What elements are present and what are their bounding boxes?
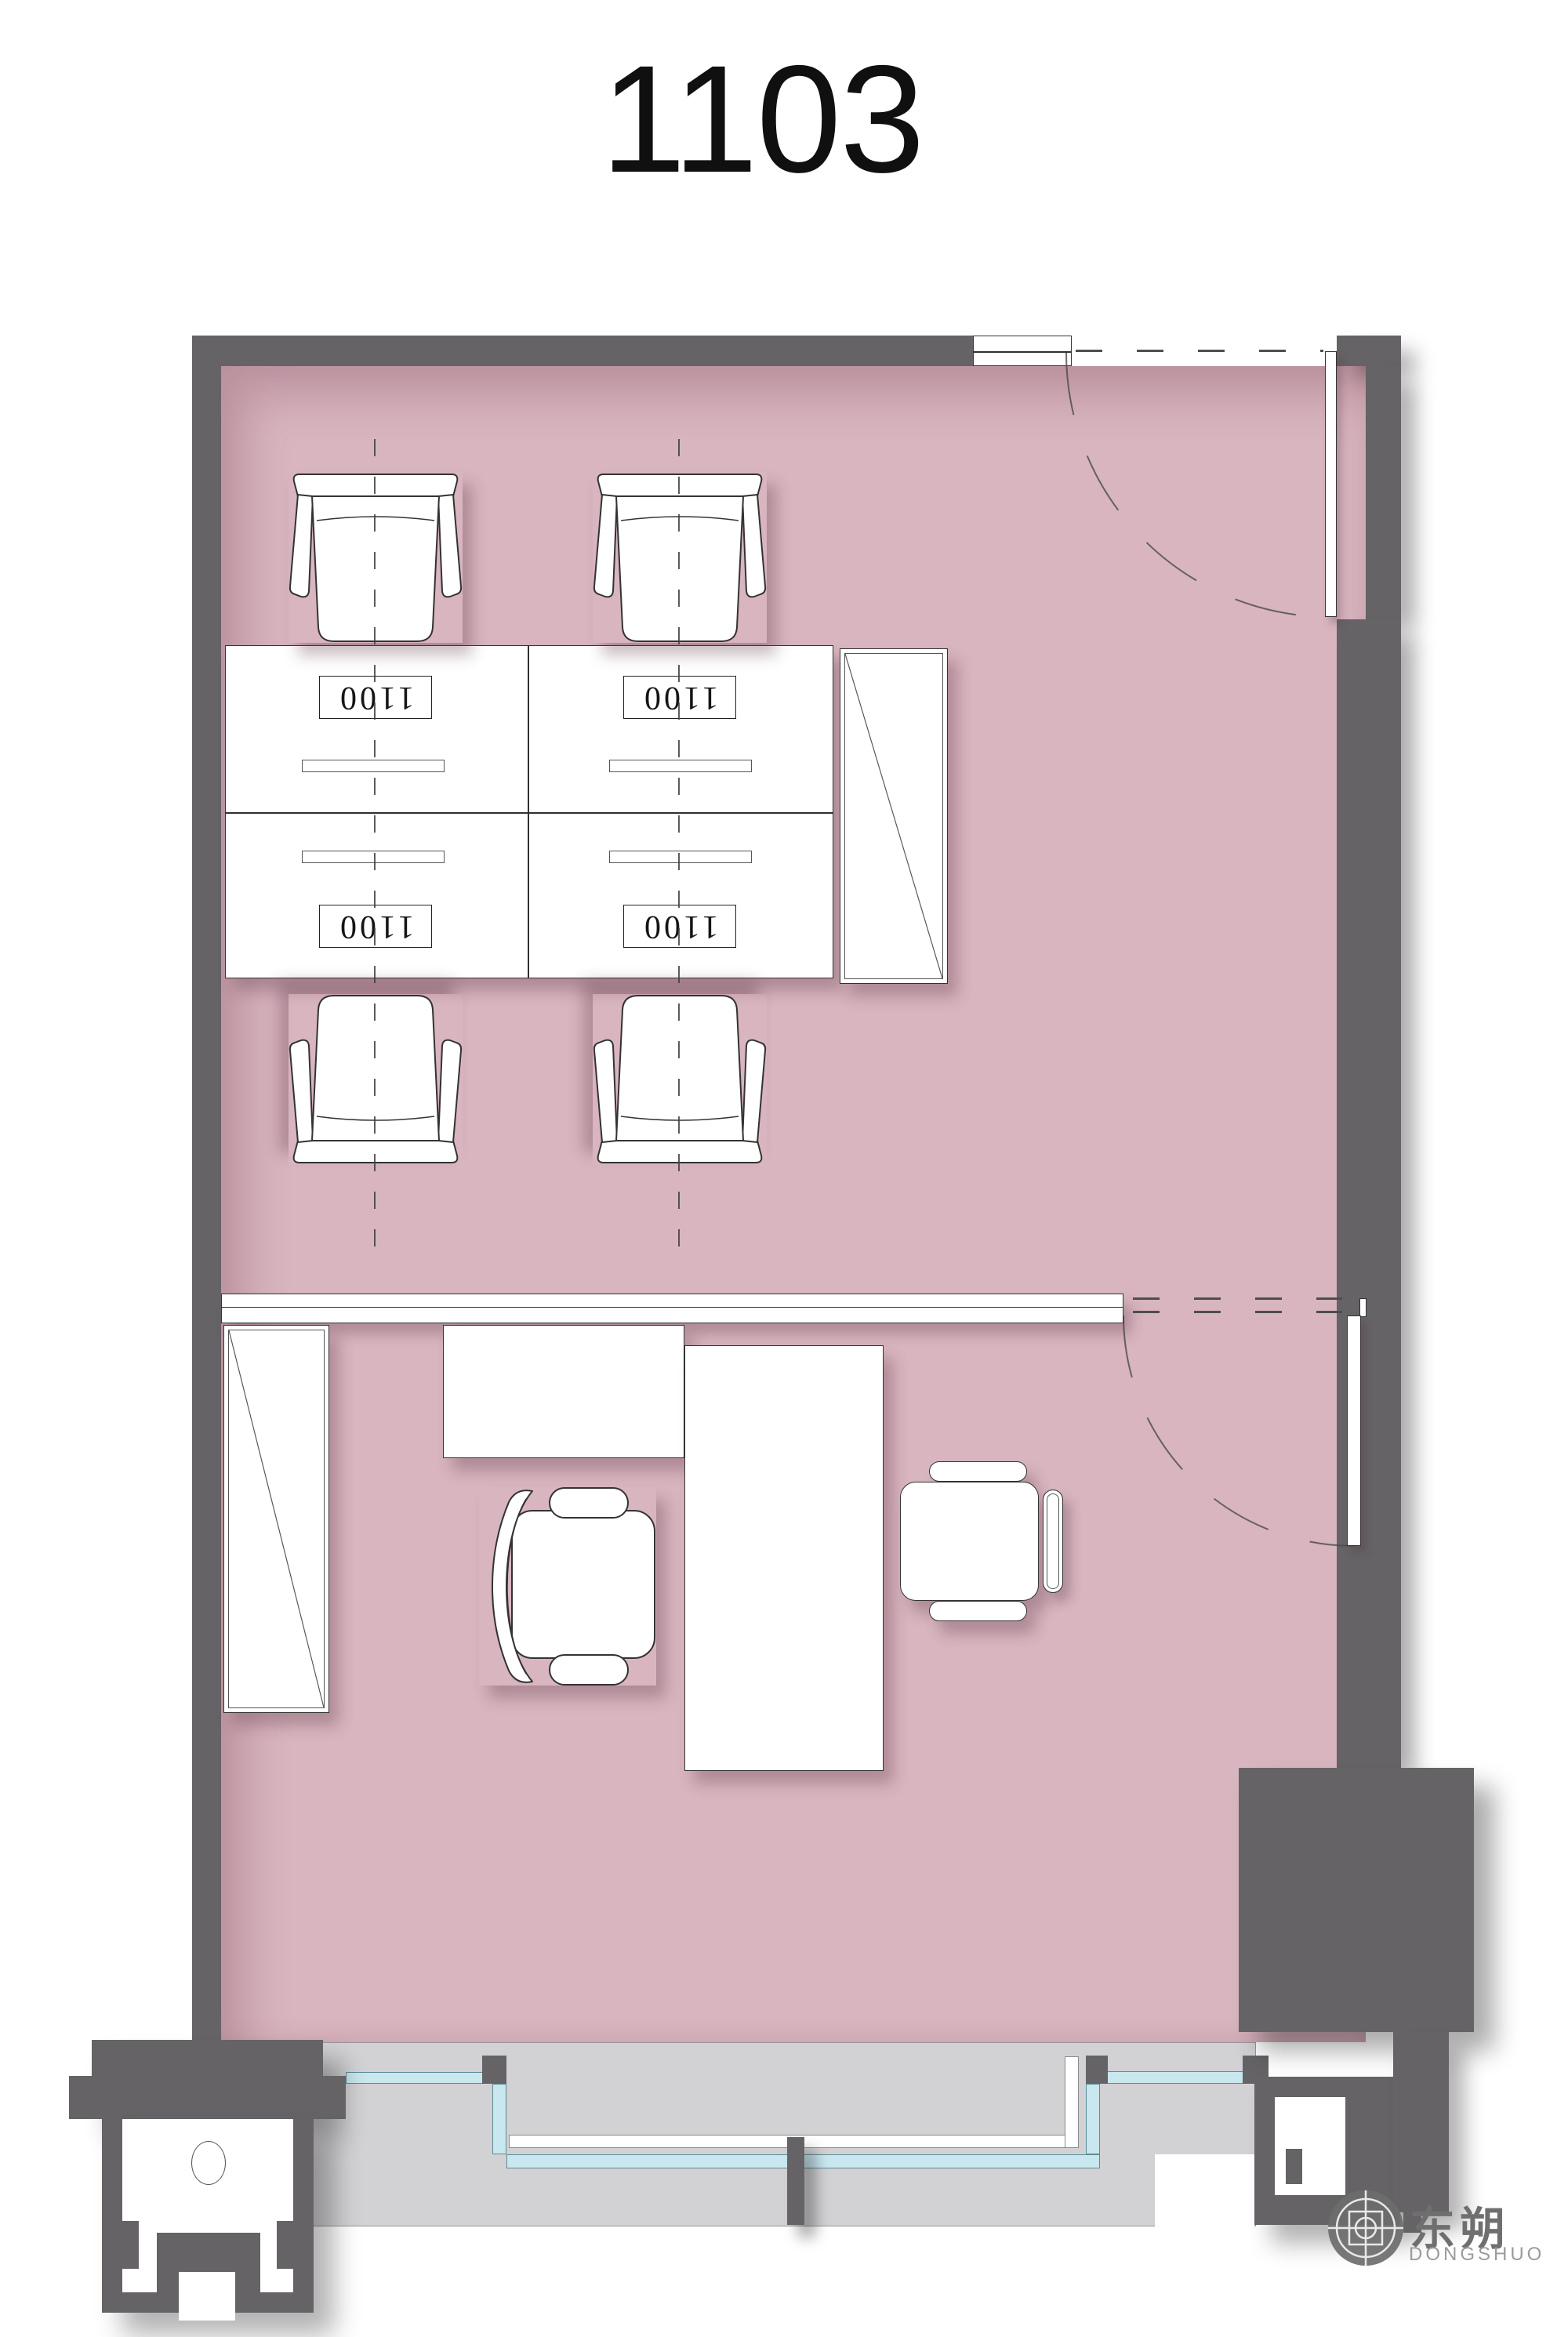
wall-top [192, 336, 973, 366]
balcony-cutout [1155, 2154, 1254, 2337]
desk-drawer-slot [302, 851, 445, 863]
ac-left-notch [179, 2272, 235, 2321]
wall-top-corner [1337, 336, 1401, 366]
ac-left-inner-stub [277, 2221, 293, 2269]
guest-chair-armrest [929, 1601, 1027, 1621]
floor-plan-1103: 1103 1100 1100 1100 1100 [0, 0, 1568, 2337]
window-glass-right-return [1086, 2084, 1100, 2154]
desk-label: 1100 [319, 676, 432, 719]
centerline [374, 439, 376, 1261]
guest-chair-seat [900, 1482, 1039, 1601]
logo-text-en: DONGSHUO [1409, 2244, 1544, 2266]
mullion-block-right [1086, 2056, 1108, 2084]
wall-right-upper [1366, 366, 1401, 619]
desk-label: 1100 [319, 905, 432, 948]
sill-channel-vertical [1065, 2056, 1079, 2148]
partition-dash-line [1133, 1297, 1342, 1300]
partition-wall [221, 1294, 1123, 1323]
ac-right-inner-stub [1286, 2149, 1302, 2184]
workstation-chair [289, 994, 463, 1165]
workstation-chair [593, 472, 767, 643]
desk-label: 1100 [623, 676, 736, 719]
desk-drawer-slot [609, 851, 752, 863]
entrance-door-leaf [1325, 351, 1337, 617]
wall-right-lower [1337, 619, 1401, 1768]
ac-enclosure-left-bar [92, 2040, 323, 2119]
partition-dash-line [1133, 1311, 1342, 1313]
entrance-door-dash-line [1076, 350, 1323, 352]
workstation-desk-cluster [225, 645, 833, 978]
desk-drawer-slot [302, 760, 445, 772]
window-glass-right [1100, 2071, 1245, 2084]
window-glass-left [346, 2072, 491, 2084]
ac-enclosure-left-ear [69, 2076, 92, 2119]
workstation-chair [289, 472, 463, 643]
cabinet-upper [840, 648, 948, 984]
executive-chair [479, 1487, 656, 1686]
mullion-block-left [482, 2056, 506, 2084]
workstation-chair [593, 994, 767, 1165]
ac-left-inner-stub [122, 2221, 139, 2269]
centerline [678, 439, 680, 1261]
executive-desk-return [443, 1325, 684, 1458]
desk-label: 1100 [623, 905, 736, 948]
page-title: 1103 [448, 43, 1076, 196]
structural-column [1239, 1768, 1474, 2032]
executive-desk-main [684, 1345, 884, 1771]
dongshuo-logo-mark-icon [1311, 2175, 1421, 2284]
door-jamb-panel [973, 336, 1072, 366]
mullion-post-center [787, 2137, 804, 2225]
guest-chair-armrest [929, 1461, 1027, 1482]
drain-circle [191, 2141, 226, 2185]
cabinet-lower [223, 1325, 329, 1713]
desk-drawer-slot [609, 760, 752, 772]
interior-door-leaf [1347, 1315, 1361, 1546]
window-glass-left-return [492, 2084, 506, 2154]
interior-door-jamb [1359, 1298, 1367, 1317]
ac-enclosure-left-ear [323, 2076, 346, 2119]
guest-chair-back [1043, 1490, 1063, 1593]
wall-left [192, 336, 221, 2041]
